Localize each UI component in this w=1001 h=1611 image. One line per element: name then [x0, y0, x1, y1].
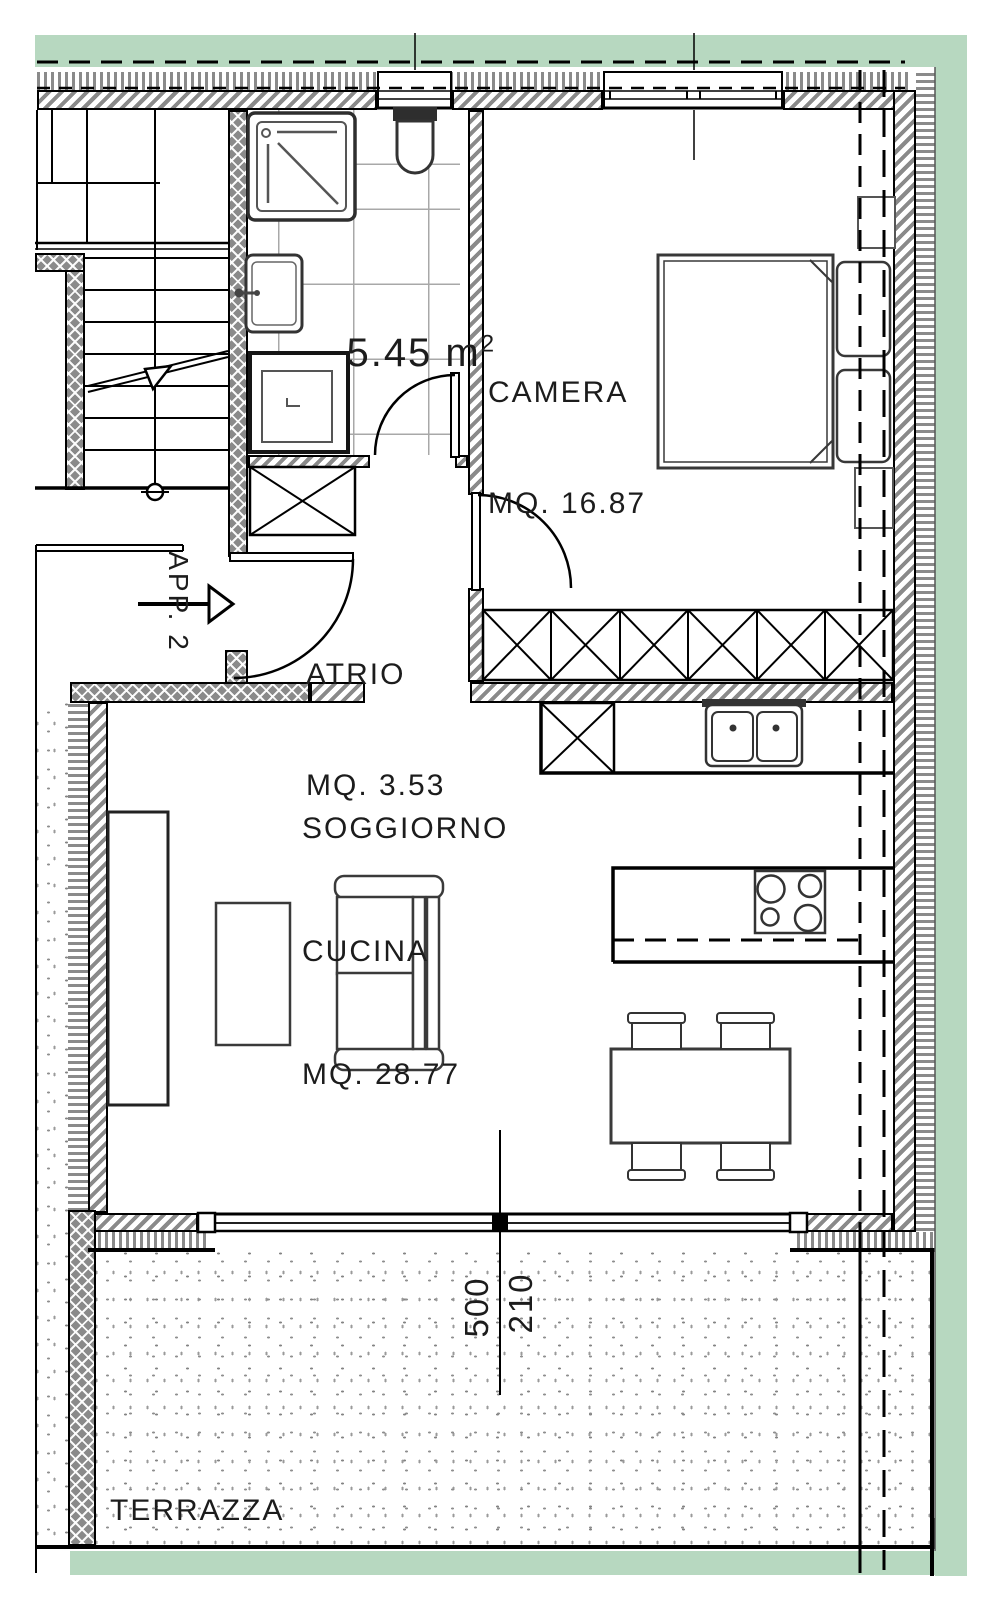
shaft-box [250, 467, 355, 535]
soggiorno-name-2: CUCINA [302, 931, 508, 972]
stairs [35, 110, 228, 551]
coffee-table [216, 903, 290, 1045]
dining-table [611, 1049, 790, 1143]
room-label-soggiorno: SOGGIORNO CUCINA MQ. 28.77 [302, 726, 508, 1177]
sideboard [108, 812, 168, 1105]
dimension-label-height: 210 [501, 1243, 541, 1363]
nightstand [858, 197, 895, 248]
terrazza-area: MQ. 17.39 [110, 1606, 284, 1611]
terrazza-name: TERRAZZA [110, 1492, 284, 1530]
room-label-bagno-area: 5.45 m2 [294, 280, 496, 426]
camera-name: CAMERA [488, 374, 646, 411]
camera-area: MQ. 16.87 [488, 485, 646, 522]
kitchen-island [613, 868, 893, 962]
dimension-width-text: 500 [457, 1276, 497, 1337]
toilet [393, 107, 437, 121]
pillow [837, 370, 890, 462]
soggiorno-name-1: SOGGIORNO [302, 808, 508, 849]
room-label-camera: CAMERA MQ. 16.87 [488, 300, 646, 596]
pillow [837, 262, 890, 356]
kitchen [541, 699, 893, 962]
apartment-entry-label: APP. 2 [153, 544, 203, 660]
floor-plan: 5.45 m2 CAMERA MQ. 16.87 ATRIO MQ. 3.53 … [0, 0, 1001, 1611]
entry-label-text: APP. 2 [161, 551, 195, 653]
wardrobe [483, 610, 893, 680]
dimension-label-width: 500 [457, 1247, 497, 1367]
bagno-area-value: 5.45 m [346, 331, 480, 375]
dimension-height-text: 210 [501, 1272, 541, 1333]
room-label-terrazza: TERRAZZA MQ. 17.39 [110, 1416, 284, 1611]
atrio-name: ATRIO [306, 656, 445, 693]
soggiorno-area: MQ. 28.77 [302, 1054, 508, 1095]
